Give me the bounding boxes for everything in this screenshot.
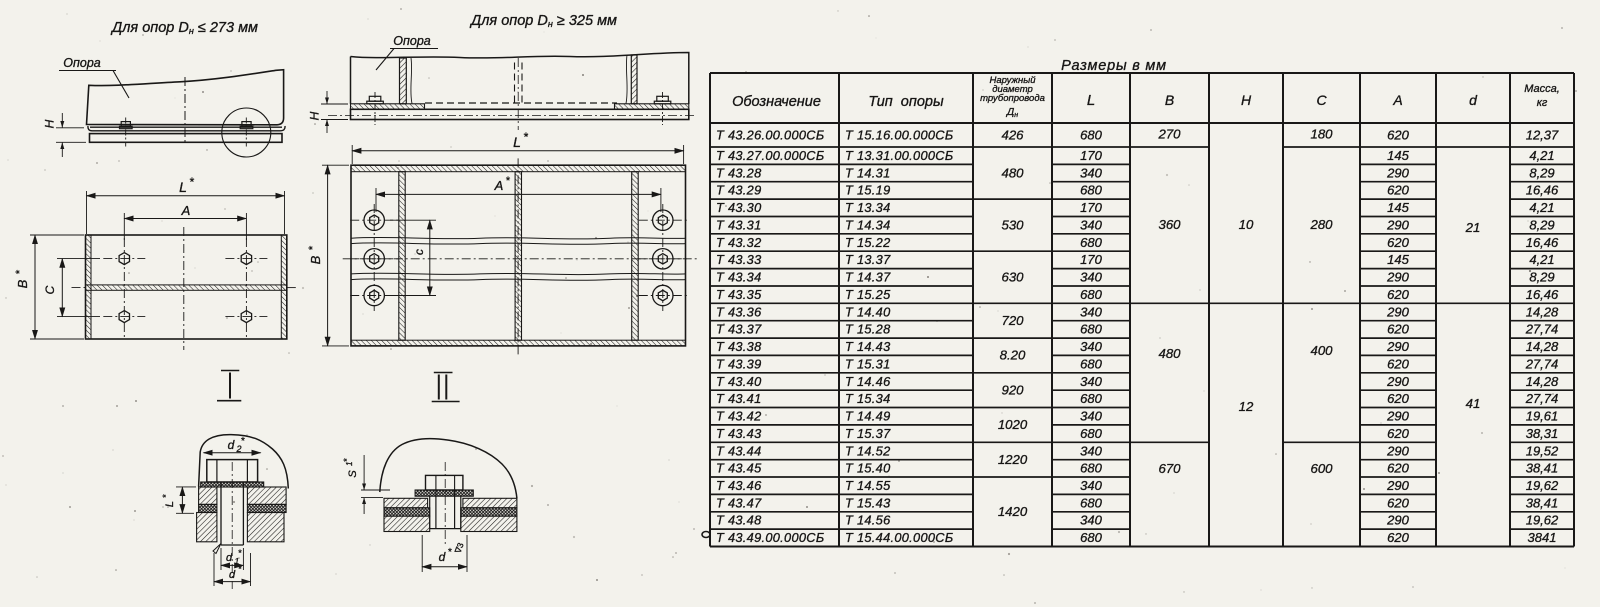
svg-text:Т 14.55: Т 14.55 — [845, 478, 891, 493]
svg-text:L: L — [164, 501, 176, 507]
svg-text:Т 15.43: Т 15.43 — [845, 495, 891, 510]
svg-text:*: * — [307, 245, 319, 250]
svg-text:12: 12 — [1239, 399, 1254, 414]
svg-text:Т 14.31: Т 14.31 — [845, 165, 891, 180]
svg-text:340: 340 — [1080, 304, 1102, 319]
svg-text:170: 170 — [1080, 148, 1102, 163]
svg-text:Н: Н — [1241, 92, 1252, 108]
svg-text:d: d — [439, 550, 446, 564]
svg-text:290: 290 — [1386, 339, 1409, 354]
svg-text:Т 43.27.00.000СБ: Т 43.27.00.000СБ — [716, 148, 824, 163]
svg-text:Масса,: Масса, — [1524, 83, 1560, 95]
svg-text:680: 680 — [1080, 426, 1102, 441]
svg-text:С: С — [43, 285, 57, 294]
svg-text:Т 14.37: Т 14.37 — [845, 270, 891, 285]
svg-text:Т 43.48: Т 43.48 — [716, 513, 762, 528]
svg-text:*: * — [14, 269, 26, 274]
svg-text:Т 43.29: Т 43.29 — [716, 183, 762, 198]
svg-text:Т 14.56: Т 14.56 — [845, 513, 891, 528]
svg-text:920: 920 — [1001, 383, 1024, 398]
svg-text:14,28: 14,28 — [1526, 339, 1559, 354]
svg-text:38,31: 38,31 — [1526, 426, 1559, 441]
svg-text:680: 680 — [1080, 530, 1102, 545]
svg-text:290: 290 — [1386, 270, 1409, 285]
svg-text:270: 270 — [1157, 126, 1181, 141]
svg-text:1420: 1420 — [998, 504, 1028, 519]
svg-text:∇3: ∇3 — [452, 541, 465, 555]
svg-text:*: * — [161, 494, 171, 498]
svg-text:Т 15.16.00.000СБ: Т 15.16.00.000СБ — [845, 127, 953, 142]
svg-text:Т 14.52: Т 14.52 — [845, 443, 891, 458]
svg-text:8,29: 8,29 — [1529, 165, 1554, 180]
svg-text:*: * — [448, 547, 452, 558]
svg-text:290: 290 — [1386, 478, 1409, 493]
svg-text:290: 290 — [1386, 374, 1409, 389]
svg-text:340: 340 — [1080, 513, 1102, 528]
svg-text:170: 170 — [1080, 252, 1102, 267]
svg-text:А: А — [494, 178, 504, 193]
svg-text:Т 43.37: Т 43.37 — [716, 322, 762, 337]
svg-text:10: 10 — [1239, 217, 1254, 232]
svg-text:Т 15.44.00.000СБ: Т 15.44.00.000СБ — [845, 530, 953, 545]
svg-text:720: 720 — [1001, 313, 1024, 328]
svg-text:Н: Н — [308, 111, 322, 120]
svg-text:Т 43.26.00.000СБ: Т 43.26.00.000СБ — [716, 127, 824, 142]
svg-text:Т 13.37: Т 13.37 — [845, 252, 891, 267]
svg-text:620: 620 — [1387, 322, 1409, 337]
svg-text:Т 43.34: Т 43.34 — [716, 270, 762, 285]
svg-text:Тип опоры: Тип опоры — [868, 94, 944, 110]
svg-text:426: 426 — [1001, 127, 1024, 142]
svg-text:Т 14.49: Т 14.49 — [845, 409, 891, 424]
svg-text:340: 340 — [1080, 270, 1102, 285]
svg-text:Т 15.19: Т 15.19 — [845, 183, 891, 198]
svg-text:Для опор Dн ≥ 325 мм: Для опор Dн ≥ 325 мм — [469, 13, 617, 29]
svg-text:Т 15.28: Т 15.28 — [845, 322, 891, 337]
svg-text:290: 290 — [1386, 218, 1409, 233]
svg-text:Т 14.46: Т 14.46 — [845, 374, 891, 389]
svg-text:620: 620 — [1387, 235, 1409, 250]
svg-text:38,41: 38,41 — [1526, 461, 1559, 476]
svg-text:В: В — [1165, 92, 1174, 108]
svg-text:Т 43.38: Т 43.38 — [716, 339, 762, 354]
svg-text:12,37: 12,37 — [1526, 127, 1559, 142]
svg-text:340: 340 — [1080, 374, 1102, 389]
svg-text:А: А — [181, 203, 191, 218]
svg-text:*: * — [342, 458, 352, 462]
svg-text:Т 43.39: Т 43.39 — [716, 356, 762, 371]
svg-text:Т 43.43: Т 43.43 — [716, 426, 762, 441]
svg-text:Т 43.49.00.000СБ: Т 43.49.00.000СБ — [716, 530, 824, 545]
svg-text:А: А — [1392, 92, 1402, 108]
svg-text:620: 620 — [1387, 127, 1409, 142]
svg-text:630: 630 — [1001, 270, 1024, 285]
svg-text:38,41: 38,41 — [1526, 495, 1559, 510]
svg-text:680: 680 — [1080, 322, 1102, 337]
svg-text:680: 680 — [1080, 356, 1102, 371]
svg-text:Т 15.22: Т 15.22 — [845, 235, 891, 250]
svg-text:14,28: 14,28 — [1526, 304, 1559, 319]
svg-text:*: * — [238, 548, 242, 558]
svg-text:620: 620 — [1387, 287, 1409, 302]
svg-text:8.20: 8.20 — [1000, 348, 1026, 363]
svg-text:680: 680 — [1080, 235, 1102, 250]
svg-text:Т 43.30: Т 43.30 — [716, 200, 762, 215]
svg-text:Н: Н — [43, 119, 57, 128]
svg-text:145: 145 — [1387, 252, 1409, 267]
svg-text:d: d — [226, 552, 233, 564]
svg-text:Т 15.25: Т 15.25 — [845, 287, 891, 302]
svg-text:трубопровода: трубопровода — [980, 93, 1045, 104]
svg-text:Т 43.45: Т 43.45 — [716, 461, 762, 476]
svg-text:d: d — [1469, 92, 1478, 108]
svg-text:1220: 1220 — [998, 452, 1028, 467]
svg-text:340: 340 — [1080, 165, 1102, 180]
svg-text:480: 480 — [1158, 346, 1181, 361]
svg-text:620: 620 — [1387, 530, 1409, 545]
svg-text:19,62: 19,62 — [1526, 513, 1559, 528]
svg-text:170: 170 — [1080, 200, 1102, 215]
svg-text:670: 670 — [1158, 461, 1181, 476]
svg-text:400: 400 — [1310, 343, 1333, 358]
svg-text:Т 43.32: Т 43.32 — [716, 235, 762, 250]
svg-text:Т 43.47: Т 43.47 — [716, 495, 762, 510]
svg-text:19,61: 19,61 — [1526, 409, 1559, 424]
svg-text:360: 360 — [1158, 217, 1181, 232]
svg-text:Опора: Опора — [63, 56, 101, 70]
svg-text:620: 620 — [1387, 461, 1409, 476]
svg-text:4,21: 4,21 — [1529, 148, 1554, 163]
svg-text:680: 680 — [1080, 127, 1102, 142]
svg-text:Т 13.31.00.000СБ: Т 13.31.00.000СБ — [845, 148, 953, 163]
svg-text:340: 340 — [1080, 443, 1102, 458]
svg-text:680: 680 — [1080, 461, 1102, 476]
svg-text:680: 680 — [1080, 391, 1102, 406]
svg-text:L: L — [1087, 92, 1095, 109]
svg-text:340: 340 — [1080, 339, 1102, 354]
svg-text:Т 14.40: Т 14.40 — [845, 304, 891, 319]
svg-text:180: 180 — [1310, 126, 1333, 141]
svg-text:с: с — [412, 249, 426, 255]
svg-text:L: L — [179, 179, 187, 195]
svg-text:Т 43.44: Т 43.44 — [716, 443, 762, 458]
svg-text:Для опор Dн ≤ 273 мм: Для опор Dн ≤ 273 мм — [110, 20, 258, 36]
svg-text:145: 145 — [1387, 200, 1409, 215]
svg-text:290: 290 — [1386, 304, 1409, 319]
svg-text:16,46: 16,46 — [1526, 183, 1559, 198]
svg-text:480: 480 — [1001, 165, 1024, 180]
svg-text:340: 340 — [1080, 478, 1102, 493]
svg-text:Т 15.40: Т 15.40 — [845, 461, 891, 476]
svg-text:620: 620 — [1387, 391, 1409, 406]
svg-text:16,46: 16,46 — [1526, 287, 1559, 302]
svg-text:19,52: 19,52 — [1526, 443, 1559, 458]
svg-text:Т 43.42: Т 43.42 — [716, 409, 762, 424]
svg-text:290: 290 — [1386, 443, 1409, 458]
svg-text:145: 145 — [1387, 148, 1409, 163]
svg-text:Дн: Дн — [1006, 106, 1018, 119]
svg-text:290: 290 — [1386, 409, 1409, 424]
svg-text:Т 13.34: Т 13.34 — [845, 200, 891, 215]
svg-text:600: 600 — [1310, 461, 1333, 476]
svg-text:340: 340 — [1080, 409, 1102, 424]
svg-text:680: 680 — [1080, 495, 1102, 510]
svg-text:530: 530 — [1001, 218, 1024, 233]
svg-text:*: * — [190, 175, 195, 189]
svg-text:Т 43.41: Т 43.41 — [716, 391, 762, 406]
svg-text:d: d — [229, 569, 236, 581]
svg-text:21: 21 — [1465, 220, 1481, 235]
svg-text:Т 43.36: Т 43.36 — [716, 304, 762, 319]
svg-text:3841: 3841 — [1528, 530, 1557, 545]
svg-text:290: 290 — [1386, 513, 1409, 528]
svg-text:27,74: 27,74 — [1525, 322, 1559, 337]
svg-text:620: 620 — [1387, 495, 1409, 510]
svg-text:Опора: Опора — [393, 34, 431, 48]
svg-text:S: S — [347, 470, 359, 478]
svg-text:19,62: 19,62 — [1526, 478, 1559, 493]
svg-text:16,46: 16,46 — [1526, 235, 1559, 250]
svg-text:1020: 1020 — [998, 417, 1028, 432]
svg-text:L: L — [513, 134, 521, 150]
svg-text:27,74: 27,74 — [1525, 356, 1559, 371]
svg-text:Т 43.46: Т 43.46 — [716, 478, 762, 493]
svg-text:*: * — [241, 436, 245, 447]
svg-text:27,74: 27,74 — [1525, 391, 1559, 406]
svg-text:4,21: 4,21 — [1529, 200, 1554, 215]
svg-text:В: В — [15, 279, 30, 288]
svg-text:Размеры в мм: Размеры в мм — [1061, 58, 1167, 74]
svg-text:кг: кг — [1537, 97, 1548, 109]
svg-text:340: 340 — [1080, 218, 1102, 233]
svg-text:d: d — [228, 438, 235, 452]
svg-text:620: 620 — [1387, 426, 1409, 441]
svg-text:8,29: 8,29 — [1529, 218, 1554, 233]
svg-text:620: 620 — [1387, 356, 1409, 371]
svg-text:Т 43.28: Т 43.28 — [716, 165, 762, 180]
svg-text:В: В — [308, 255, 323, 264]
svg-text:290: 290 — [1386, 165, 1409, 180]
svg-text:8,29: 8,29 — [1529, 270, 1554, 285]
svg-text:Т 15.34: Т 15.34 — [845, 391, 891, 406]
svg-text:Т 43.35: Т 43.35 — [716, 287, 762, 302]
svg-text:С: С — [1316, 92, 1327, 108]
svg-text:Т 43.33: Т 43.33 — [716, 252, 762, 267]
svg-text:Т 14.43: Т 14.43 — [845, 339, 891, 354]
svg-text:*: * — [524, 130, 529, 144]
svg-text:*: * — [238, 564, 242, 574]
svg-text:Т 14.34: Т 14.34 — [845, 218, 891, 233]
svg-text:Т 43.31: Т 43.31 — [716, 218, 762, 233]
svg-text:14,28: 14,28 — [1526, 374, 1559, 389]
svg-text:4,21: 4,21 — [1529, 252, 1554, 267]
svg-text:Т 15.31: Т 15.31 — [845, 356, 891, 371]
svg-text:620: 620 — [1387, 183, 1409, 198]
svg-text:Обозначение: Обозначение — [732, 94, 821, 110]
svg-text:280: 280 — [1309, 217, 1333, 232]
svg-text:680: 680 — [1080, 183, 1102, 198]
svg-text:*: * — [506, 175, 511, 187]
svg-text:680: 680 — [1080, 287, 1102, 302]
svg-text:41: 41 — [1466, 396, 1481, 411]
svg-text:Т 15.37: Т 15.37 — [845, 426, 891, 441]
svg-text:Т 43.40: Т 43.40 — [716, 374, 762, 389]
